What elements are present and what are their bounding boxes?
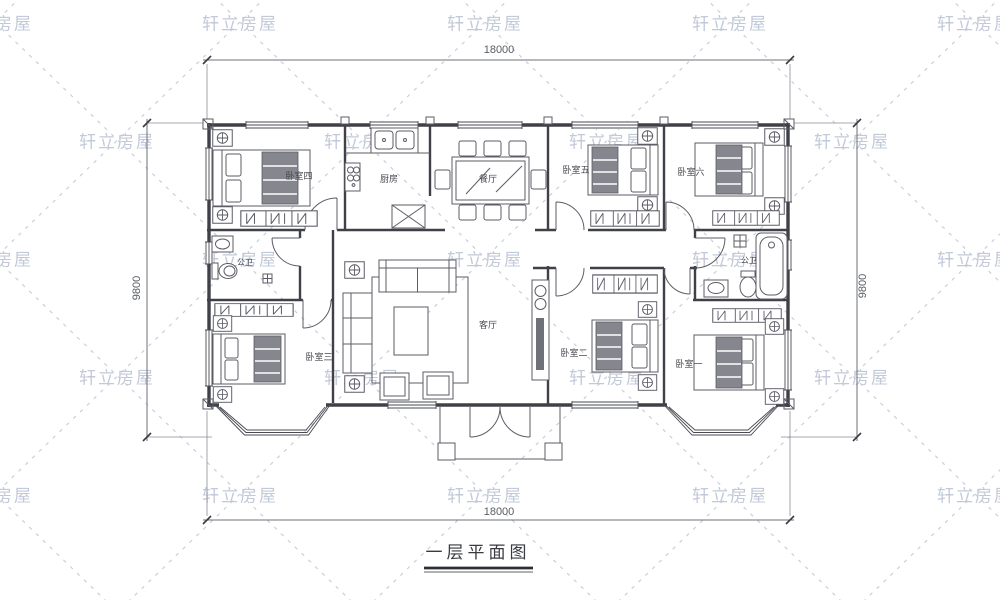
entrance-door bbox=[470, 407, 530, 437]
room-label-bedroom3: 卧室三 bbox=[305, 351, 332, 362]
bedroom5-furniture bbox=[588, 128, 659, 226]
drawing-title: 一层平面图 bbox=[426, 543, 531, 562]
bedroom6-furniture bbox=[695, 129, 784, 226]
bay-window-right bbox=[664, 405, 779, 435]
drawing-title-block: 一层平面图 bbox=[424, 543, 533, 572]
bathroom-right-fixtures bbox=[704, 233, 787, 299]
dimension-right: 9800 bbox=[857, 274, 869, 298]
room-label-kitchen: 厨房 bbox=[380, 173, 398, 184]
living-room-furniture bbox=[343, 260, 549, 400]
room-label-bath-left: 公卫 bbox=[237, 258, 253, 267]
room-label-bedroom5: 卧室五 bbox=[562, 164, 589, 175]
floor-plan-drawing: 18000 18000 9800 9800 bbox=[0, 0, 1000, 600]
room-label-bedroom1: 卧室一 bbox=[675, 358, 702, 369]
room-label-bedroom4: 卧室四 bbox=[285, 170, 312, 181]
room-label-bedroom6: 卧室六 bbox=[677, 166, 704, 177]
floor-plan-page: 轩立房屋 轩立房屋 轩立房屋 轩立房屋 轩立房屋 轩立房屋 轩立房屋 轩立房屋 … bbox=[0, 0, 1000, 600]
bedroom1-furniture bbox=[694, 309, 784, 405]
dimension-top: 18000 bbox=[484, 44, 515, 56]
porch bbox=[438, 407, 562, 460]
dimension-bottom: 18000 bbox=[484, 506, 515, 518]
room-label-bedroom2: 卧室二 bbox=[560, 347, 587, 358]
room-label-bath-right: 公卫 bbox=[741, 256, 757, 265]
bedroom2-furniture bbox=[592, 275, 658, 390]
bedroom3-furniture bbox=[213, 304, 293, 403]
room-label-living: 客厅 bbox=[479, 319, 497, 330]
room-label-dining: 餐厅 bbox=[479, 173, 497, 184]
dimension-left: 9800 bbox=[131, 276, 143, 300]
bay-window-left bbox=[215, 405, 330, 435]
